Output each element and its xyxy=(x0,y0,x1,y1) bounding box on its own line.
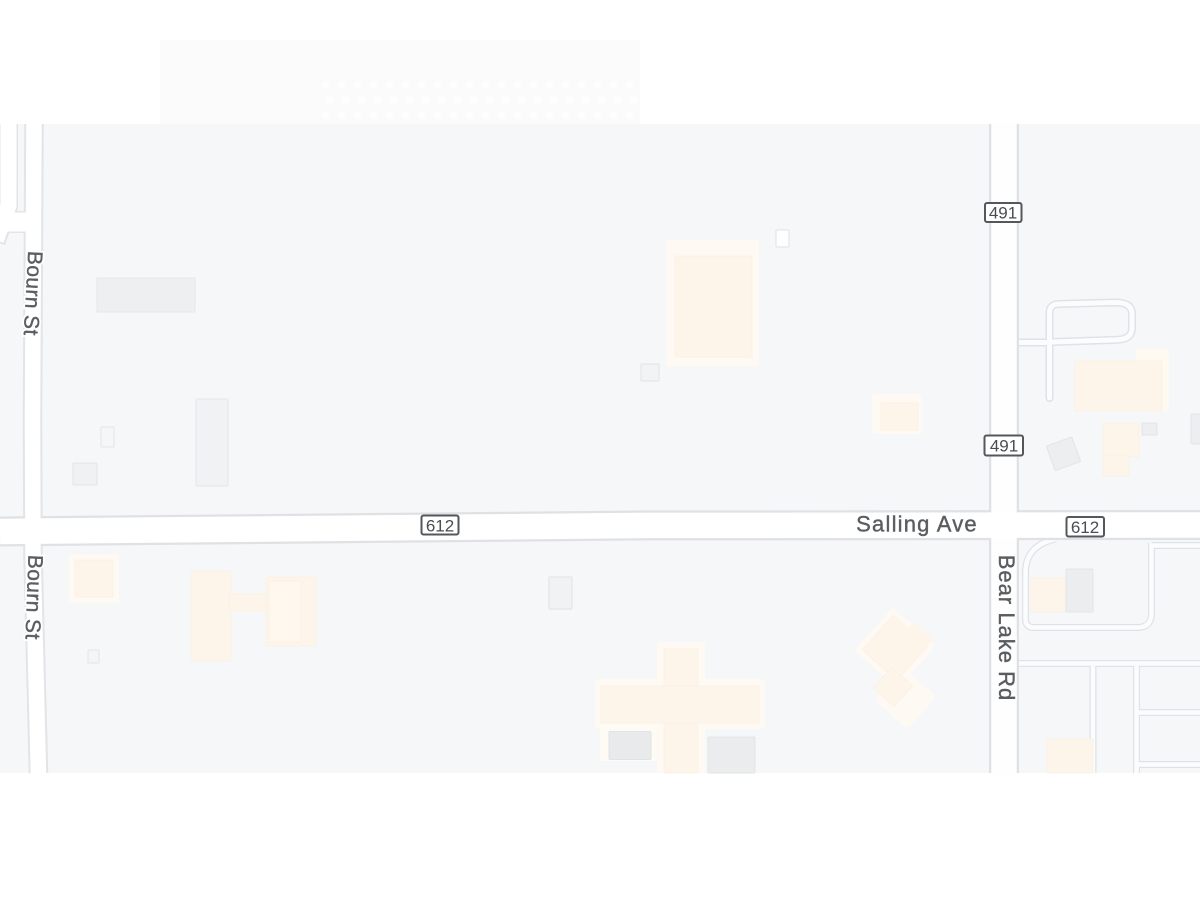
svg-text:Bourn St: Bourn St xyxy=(21,554,47,640)
svg-text:491: 491 xyxy=(989,203,1017,222)
svg-text:Salling Ave: Salling Ave xyxy=(856,512,978,537)
svg-text:491: 491 xyxy=(990,436,1018,455)
svg-text:612: 612 xyxy=(1071,518,1099,537)
svg-text:Bear Lake Rd: Bear Lake Rd xyxy=(994,555,1019,702)
svg-text:Bourn St: Bourn St xyxy=(19,250,46,336)
svg-text:612: 612 xyxy=(426,516,454,535)
